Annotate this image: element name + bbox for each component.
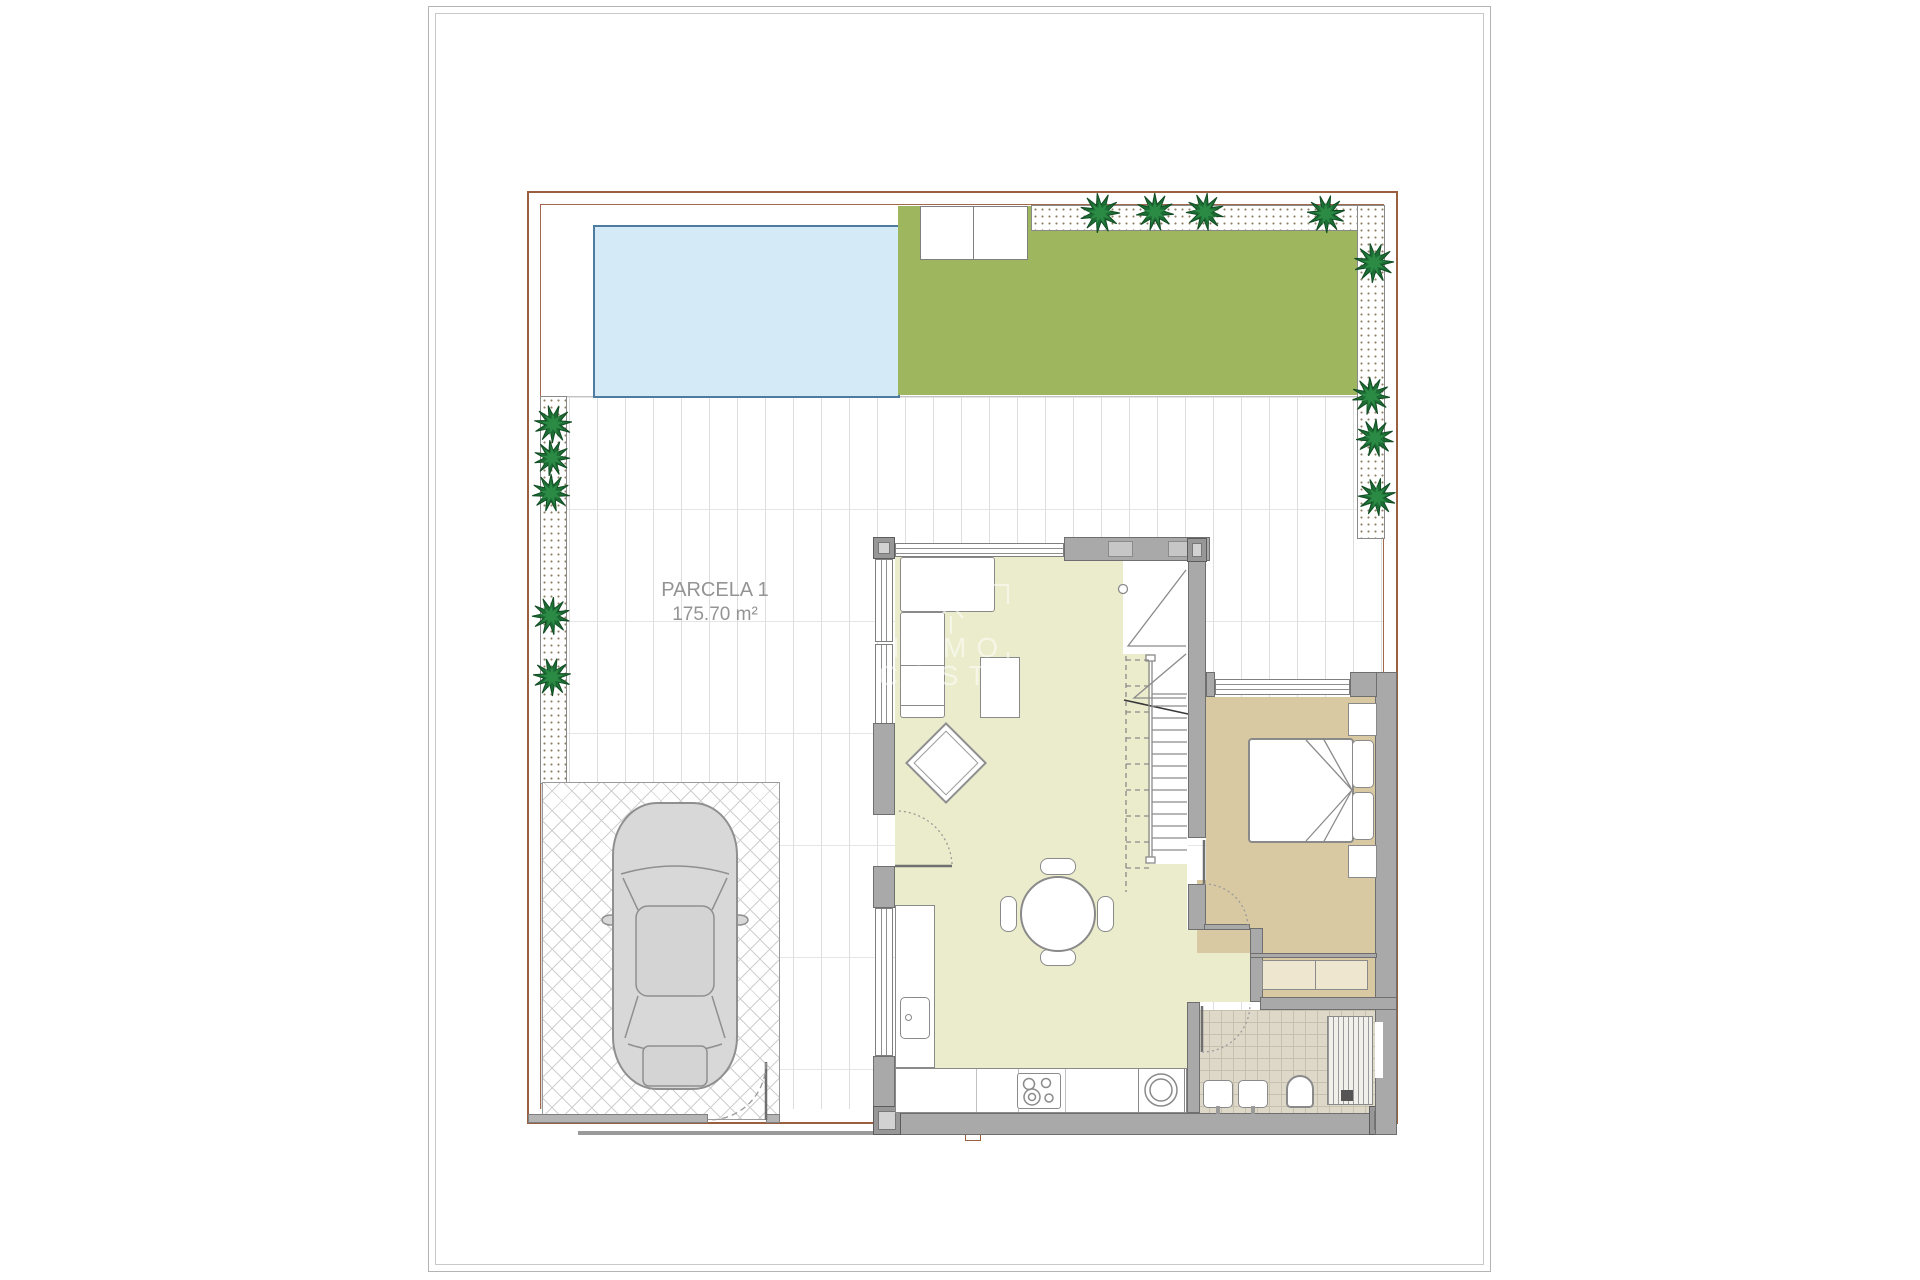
nightstand-top (1348, 703, 1377, 736)
floor-plan-canvas: PARCELA 1 175.70 m² IMMO COSTA (0, 0, 1920, 1280)
living-top-window (895, 543, 1064, 557)
kitchen-counter-left (895, 905, 935, 1068)
column-top-left (873, 537, 895, 559)
planter-strip-right (1357, 205, 1385, 539)
sofa-chaise (900, 557, 995, 612)
sink-stem-1 (1216, 1106, 1220, 1114)
wall-bottom (873, 1113, 1397, 1135)
garden-pad-right (973, 206, 1028, 260)
watermark-text: IMMO COSTA (855, 634, 1045, 690)
wall-bedroom-south-stub (1204, 924, 1250, 930)
swimming-pool (593, 225, 900, 398)
wall-ne-stub (1350, 672, 1377, 697)
cooktop (1017, 1073, 1061, 1109)
bathroom-sink-2 (1238, 1080, 1268, 1108)
column-stairs-top (1187, 538, 1207, 562)
front-fence-right (766, 1114, 780, 1123)
wall-left-1 (873, 723, 895, 815)
front-fence-left (528, 1114, 708, 1123)
bed-pillow-bottom (1352, 792, 1374, 840)
planter-strip-top (1031, 205, 1383, 231)
washing-machine (1138, 1068, 1185, 1113)
left-window-1 (875, 559, 893, 642)
nightstand-bottom (1348, 845, 1377, 878)
bed-pillow-top (1352, 740, 1374, 788)
car-icon (608, 798, 742, 1094)
dining-chair-top (1040, 858, 1076, 875)
wall-left-2 (873, 866, 895, 908)
parcel-area: 175.70 m² (630, 603, 800, 627)
toilet (1286, 1075, 1314, 1108)
shower-drain (1341, 1090, 1353, 1101)
planter-strip-left (540, 396, 567, 784)
wall-closet-line (1250, 953, 1377, 958)
watermark-line2: COSTA (855, 662, 1045, 690)
wall-kitchen-bathroom (1187, 1002, 1200, 1113)
kitchen-faucet-dot (905, 1014, 912, 1021)
wall-stairs-bedroom (1188, 557, 1206, 838)
watermark-line1: IMMO (855, 634, 1045, 662)
dining-table (1020, 876, 1096, 952)
left-window-3 (875, 908, 893, 1056)
parcel-name: PARCELA 1 (630, 578, 800, 603)
stair-flight (1150, 652, 1188, 864)
wardrobe (1262, 960, 1368, 990)
bedroom-window (1215, 679, 1350, 695)
wall-window-stub (1206, 672, 1215, 697)
wall-bathroom-top (1260, 997, 1397, 1010)
wall-top-inset-1 (1108, 541, 1133, 557)
bathroom-window-slit (1375, 1022, 1383, 1078)
parcel-label: PARCELA 1 175.70 m² (630, 578, 800, 627)
garden-pad-left (920, 206, 974, 260)
bathroom-sink-1 (1203, 1080, 1233, 1108)
dining-chair-right (1097, 896, 1114, 932)
sink-stem-2 (1251, 1106, 1255, 1114)
stair-landing (1123, 559, 1188, 654)
dining-chair-left (1000, 896, 1017, 932)
bed-mattress (1248, 738, 1354, 843)
